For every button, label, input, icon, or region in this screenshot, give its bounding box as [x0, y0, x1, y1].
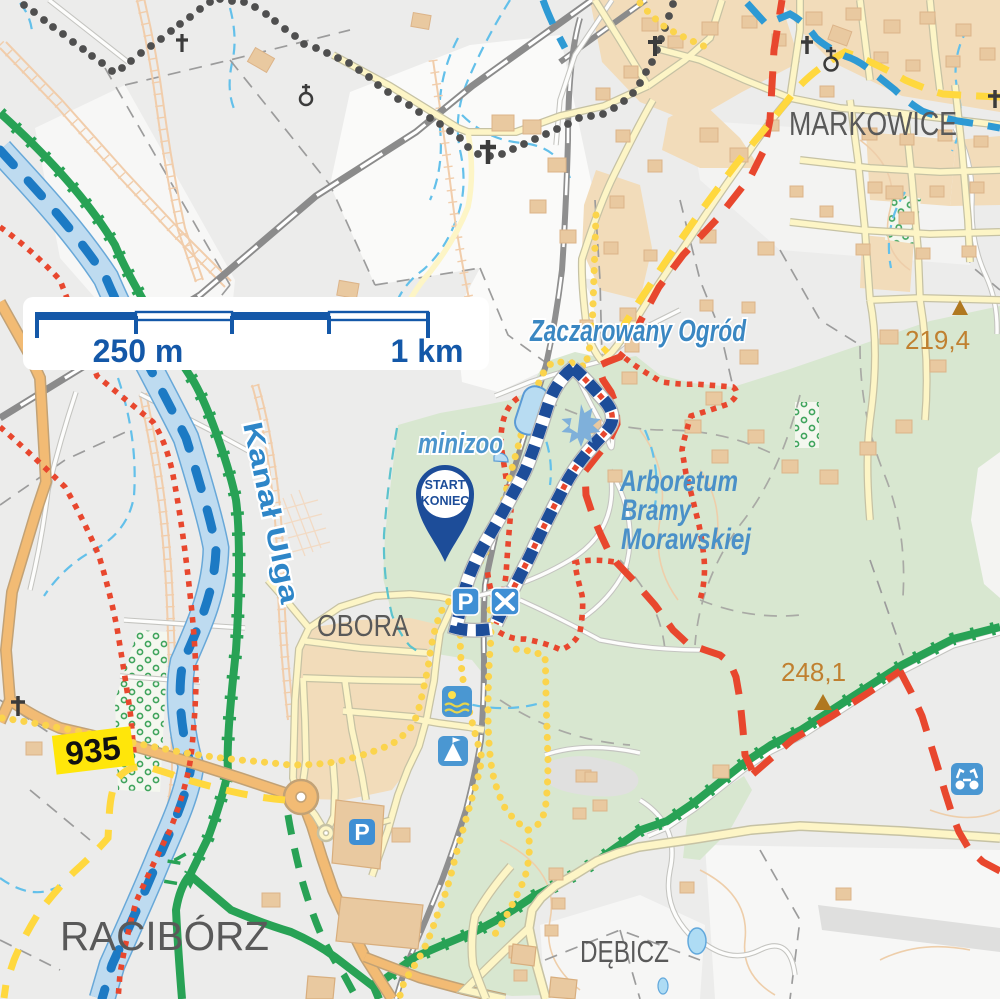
svg-text:Zaczarowany Ogród: Zaczarowany Ogród	[529, 313, 746, 348]
svg-text:DĘBICZ: DĘBICZ	[580, 934, 669, 969]
svg-text:Morawskiej: Morawskiej	[621, 523, 752, 556]
svg-text:START: START	[425, 478, 466, 492]
svg-text:250 m: 250 m	[93, 333, 184, 369]
svg-text:minizoo: minizoo	[418, 428, 503, 460]
svg-text:KONIEC: KONIEC	[421, 494, 470, 508]
svg-text:P: P	[354, 819, 369, 845]
svg-text:935: 935	[63, 729, 122, 772]
svg-text:248,1: 248,1	[781, 657, 846, 687]
svg-text:OBORA: OBORA	[317, 608, 409, 643]
svg-text:MARKOWICE: MARKOWICE	[789, 105, 957, 142]
svg-text:1 km: 1 km	[391, 333, 464, 369]
svg-text:RACIBÓRZ: RACIBÓRZ	[60, 913, 269, 959]
svg-text:219,4: 219,4	[905, 325, 970, 355]
svg-text:P: P	[457, 589, 473, 616]
